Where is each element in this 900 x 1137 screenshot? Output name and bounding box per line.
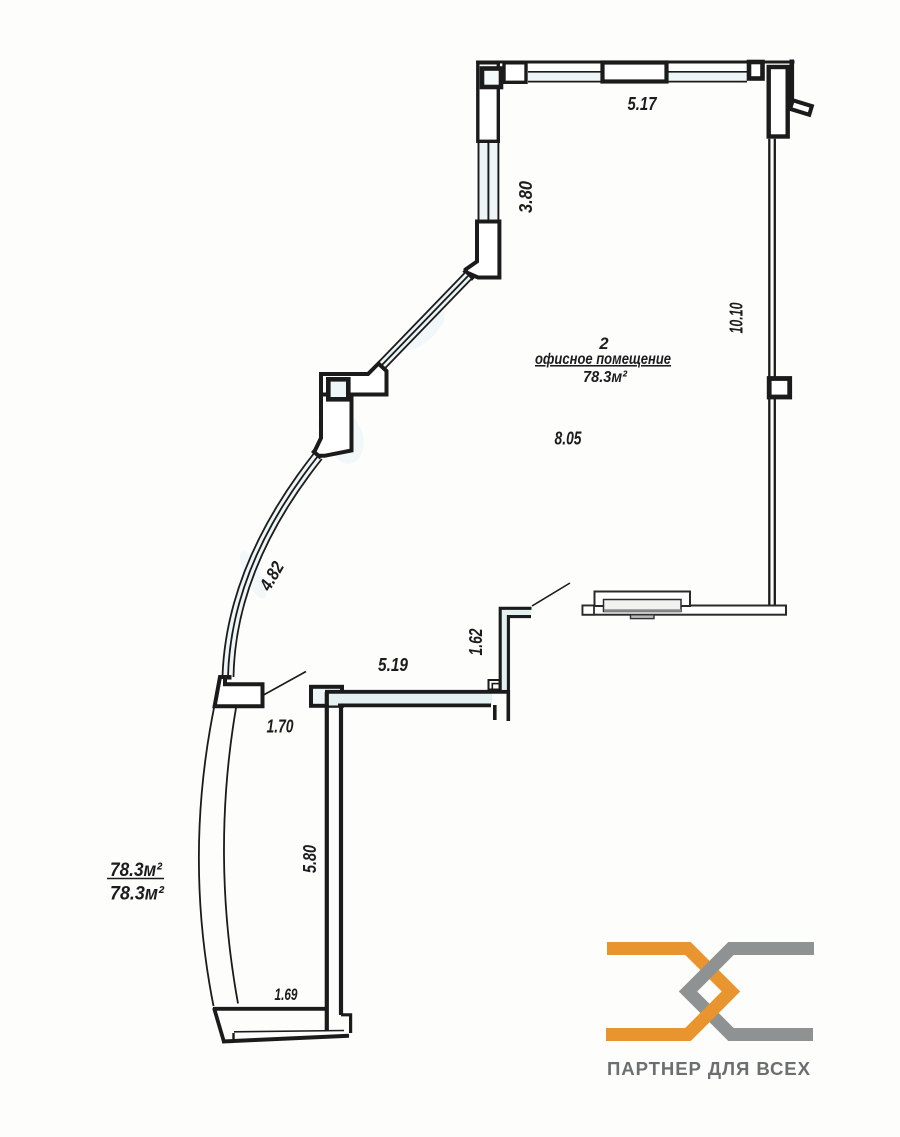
svg-text:1.62: 1.62 [466,629,486,656]
svg-text:8.05: 8.05 [555,429,583,449]
svg-text:1.70: 1.70 [267,717,294,737]
svg-text:офисное помещение: офисное помещение [535,351,671,368]
svg-text:3.80: 3.80 [516,181,536,213]
svg-text:10.10: 10.10 [727,303,747,334]
svg-text:1.69: 1.69 [275,985,298,1004]
svg-text:5.80: 5.80 [300,845,320,873]
svg-text:78.3м²: 78.3м² [110,884,165,905]
svg-text:5.17: 5.17 [628,94,658,114]
svg-text:5.19: 5.19 [378,655,408,675]
svg-text:78.3м²: 78.3м² [583,369,628,386]
svg-text:ПАРТНЕР ДЛЯ ВСЕХ: ПАРТНЕР ДЛЯ ВСЕХ [607,1058,811,1079]
